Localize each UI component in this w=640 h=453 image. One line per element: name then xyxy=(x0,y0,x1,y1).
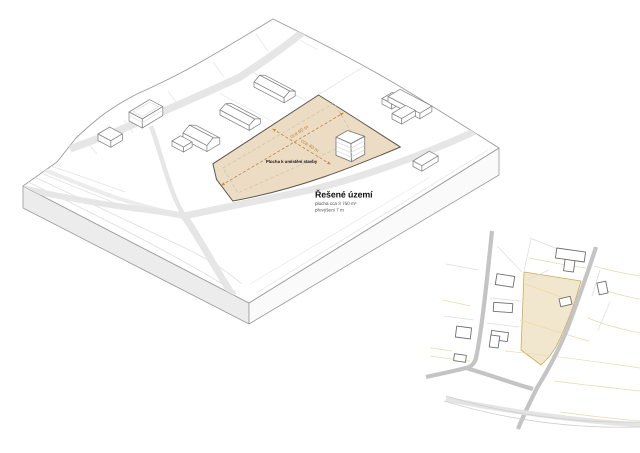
svg-text:Řešené území: Řešené území xyxy=(315,190,373,200)
svg-text:převýšení 7 m: převýšení 7 m xyxy=(315,208,344,213)
svg-text:Plocha k umístění stavby: Plocha k umístění stavby xyxy=(266,159,318,164)
svg-text:plocha cca 3 750 m²: plocha cca 3 750 m² xyxy=(315,201,357,206)
